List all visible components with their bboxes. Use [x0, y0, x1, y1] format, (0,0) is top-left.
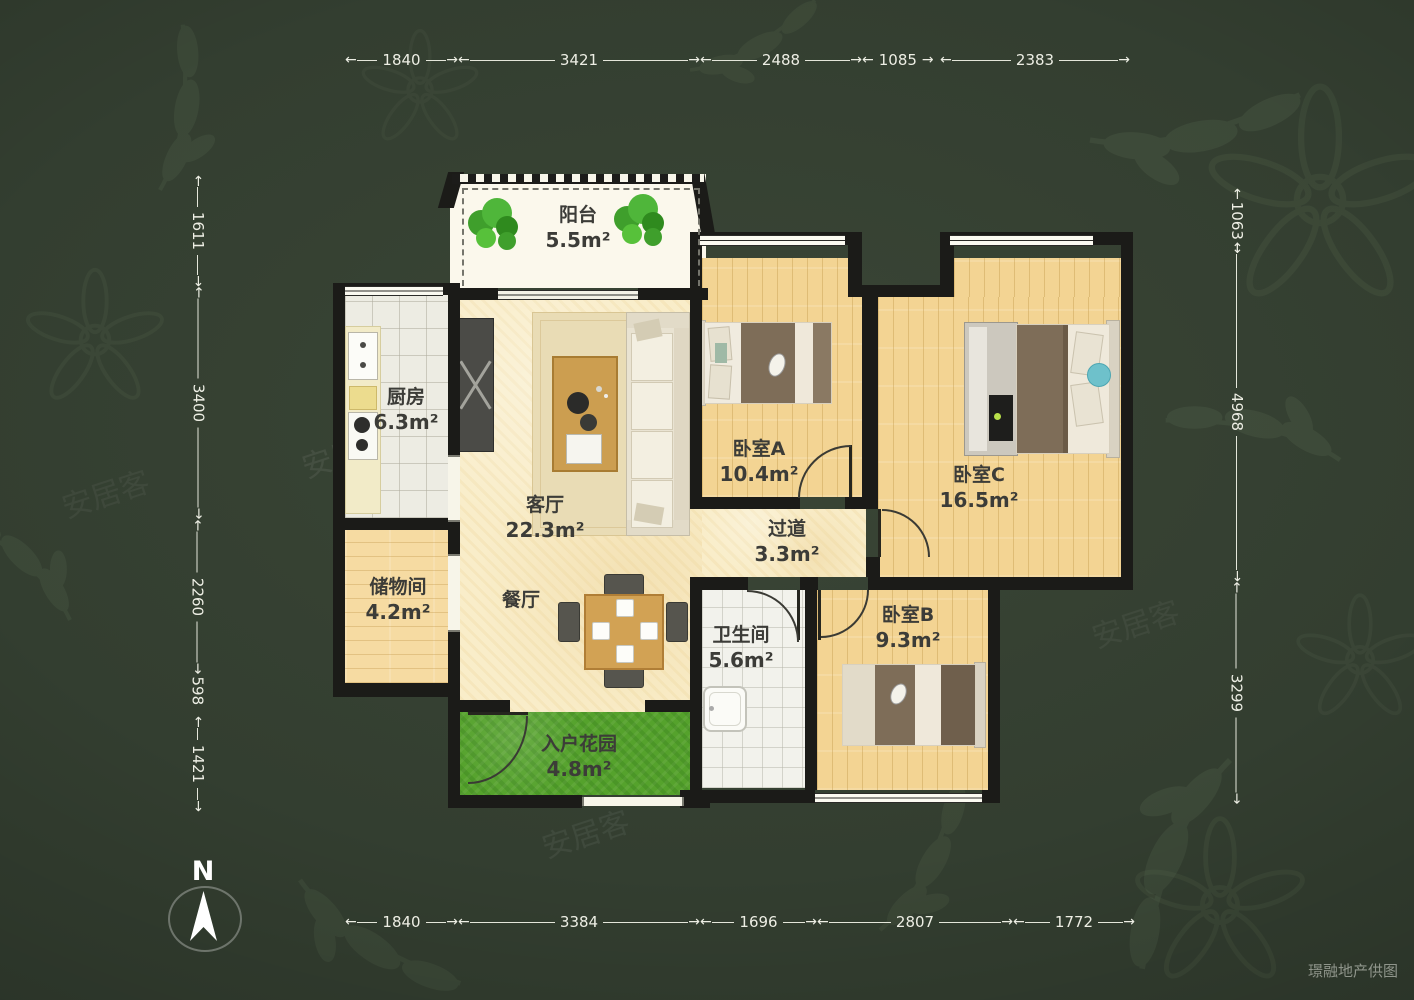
arrow-left-icon: ← — [1230, 242, 1244, 254]
dimension-left-5: ←1421→ — [187, 716, 209, 812]
arrow-left-icon: ← — [458, 915, 470, 929]
dimension-value: 1840 — [377, 913, 425, 931]
dimension-value: 4968 — [1228, 388, 1246, 436]
wardrobe-tv-stand — [964, 322, 1018, 456]
dimension-value: 2383 — [1011, 51, 1059, 69]
arrow-left-icon: ← — [458, 53, 470, 67]
dimension-bottom-3: ←1696→ — [700, 911, 817, 933]
dimension-value: 3421 — [555, 51, 603, 69]
dimension-left-2: ←3400→ — [188, 287, 210, 520]
plate — [616, 645, 634, 663]
dining-chair — [558, 602, 580, 642]
wall-segment — [448, 628, 460, 683]
wall-segment — [448, 518, 460, 554]
room-name: 卧室C — [940, 464, 1019, 488]
room-area: 6.3m² — [373, 410, 438, 435]
window-bedroom-c — [950, 235, 1093, 246]
arrow-left-icon: ← — [817, 915, 829, 929]
kitchen-sink — [348, 332, 378, 380]
blanket-edge — [1063, 325, 1068, 453]
room-label-corridor: 过道 3.3m² — [754, 518, 819, 567]
wall-segment — [448, 795, 582, 808]
dimension-value: 598 — [189, 675, 207, 708]
room-name: 入户花园 — [541, 733, 617, 757]
wall-segment — [988, 577, 1000, 803]
wall-segment — [868, 577, 1133, 590]
dimension-right-2: ←4968→ — [1226, 242, 1248, 582]
room-label-bedroom-b: 卧室B 9.3m² — [875, 604, 940, 653]
drain — [709, 706, 714, 711]
arrow-right-icon: → — [1123, 915, 1135, 929]
tv-cabinet — [458, 318, 494, 452]
dimension-value: 3384 — [555, 913, 603, 931]
arrow-left-icon: ← — [700, 53, 712, 67]
wall-segment — [800, 577, 818, 590]
window-kitchen — [345, 286, 443, 296]
arrow-left-icon: ← — [862, 53, 874, 67]
door-leaf-bedroom-c — [878, 509, 881, 557]
bed-bedroom-b — [842, 664, 976, 746]
dimension-bottom-2: ←3384→ — [458, 911, 700, 933]
door-leaf-entry — [468, 712, 528, 715]
arrow-right-icon: → — [850, 53, 862, 67]
room-area: 4.2m² — [365, 600, 430, 625]
balcony-sliding-door — [498, 290, 638, 300]
dimension-right-3: ←3299→ — [1226, 582, 1248, 805]
wall-segment — [448, 697, 460, 807]
dimension-left-3: ←2260→ — [187, 520, 209, 675]
balcony-parapet — [452, 174, 704, 184]
pillow — [915, 665, 941, 745]
room-area: 9.3m² — [875, 628, 940, 653]
room-name: 卫生间 — [708, 624, 773, 648]
wall-segment — [805, 590, 817, 790]
room-area: 22.3m² — [506, 518, 585, 543]
room-name: 厨房 — [373, 386, 438, 410]
dimension-value: 1421 — [189, 740, 207, 788]
wall-segment — [848, 285, 954, 297]
arrow-right-icon: → — [1230, 570, 1244, 582]
dimension-bottom-4: ←2807→ — [817, 911, 1013, 933]
teapot — [567, 392, 589, 414]
room-label-balcony: 阳台 5.5m² — [545, 204, 610, 253]
room-name: 卧室A — [720, 438, 799, 462]
room-label-kitchen: 厨房 6.3m² — [373, 386, 438, 435]
arrow-right-icon: → — [446, 915, 458, 929]
room-area: 3.3m² — [754, 542, 819, 567]
wall-segment — [638, 288, 708, 300]
arrow-left-icon: ← — [191, 175, 205, 187]
door-opening-kitchen — [448, 455, 460, 522]
dimension-value: 1063 — [1228, 200, 1246, 242]
arrow-right-icon: → — [688, 53, 700, 67]
blanket — [875, 665, 915, 745]
room-name: 卧室B — [875, 604, 940, 628]
wall-segment — [690, 577, 702, 795]
window-bedroom-a — [700, 235, 845, 246]
dimension-value: 1085 — [874, 51, 922, 69]
door-opening-storage — [448, 554, 460, 632]
room-name: 餐厅 — [502, 589, 540, 613]
dimension-bottom-5: ←1772→ — [1013, 911, 1135, 933]
dimension-value: 2807 — [891, 913, 939, 931]
arrow-right-icon: → — [805, 915, 817, 929]
wall-segment — [866, 557, 880, 577]
dimension-value: 1840 — [377, 51, 425, 69]
arrow-right-icon: → — [1001, 915, 1013, 929]
room-area: 4.8m² — [541, 757, 617, 782]
dimension-value: 1772 — [1050, 913, 1098, 931]
room-label-bathroom: 卫生间 5.6m² — [708, 624, 773, 673]
wall-segment — [333, 518, 460, 530]
accent-pillow — [1087, 363, 1111, 387]
dimension-value: 3400 — [190, 379, 208, 427]
room-name: 储物间 — [365, 576, 430, 600]
arrow-right-icon: → — [192, 508, 206, 520]
arrow-left-icon: ← — [700, 915, 712, 929]
blanket — [941, 665, 975, 745]
dimension-left-4: 598 — [187, 675, 209, 716]
arrow-right-icon: → — [1230, 793, 1244, 805]
blanket-fold — [843, 665, 875, 745]
sofa-cushion — [631, 431, 673, 479]
dimension-value: 2260 — [189, 573, 207, 621]
wall-segment — [448, 700, 510, 712]
room-label-bedroom-c: 卧室C 16.5m² — [940, 464, 1019, 513]
dining-chair — [666, 602, 688, 642]
room-area: 5.5m² — [545, 228, 610, 253]
room-label-living: 客厅 22.3m² — [506, 494, 585, 543]
dimension-right-1: ←1063→ — [1226, 188, 1248, 242]
arrow-left-icon: ← — [345, 915, 357, 929]
dimension-value: 1611 — [189, 207, 207, 255]
plate — [592, 622, 610, 640]
arrow-left-icon: ← — [345, 53, 357, 67]
wall-segment — [333, 283, 345, 697]
room-label-dining: 餐厅 — [502, 589, 540, 613]
sofa-cushion — [631, 382, 673, 430]
dot — [604, 394, 608, 398]
dining-chair — [604, 574, 644, 596]
room-label-bedroom-a: 卧室A 10.4m² — [720, 438, 799, 487]
plate — [640, 622, 658, 640]
arrow-left-icon: ← — [1230, 188, 1244, 200]
wall-segment — [448, 288, 498, 300]
arrow-right-icon: → — [446, 53, 458, 67]
entry-door-threshold — [582, 797, 684, 806]
arrow-left-icon: ← — [1013, 915, 1025, 929]
wall-segment — [333, 683, 460, 697]
plate — [616, 599, 634, 617]
wardrobe-door — [969, 327, 987, 451]
floorplan-page: 安居客 安居客 安居客 安居客 安居客 — [0, 0, 1414, 1000]
arrow-right-icon: → — [922, 53, 934, 67]
dimension-top-3: ←2488→ — [700, 49, 862, 71]
dining-table — [584, 594, 664, 670]
wall-segment — [1121, 232, 1133, 590]
dimension-value: 2488 — [757, 51, 805, 69]
tray — [566, 434, 602, 464]
dimension-top-5: ←2383→ — [940, 49, 1130, 71]
dot — [596, 386, 602, 392]
room-area: 10.4m² — [720, 462, 799, 487]
arrow-right-icon: → — [191, 800, 205, 812]
pillow — [1070, 381, 1104, 426]
arrow-left-icon: ← — [940, 53, 952, 67]
wall-segment — [448, 283, 460, 455]
accent-pillow — [715, 343, 727, 363]
dimension-left-1: ←1611→ — [187, 175, 209, 287]
blanket — [813, 323, 831, 403]
pillow — [708, 364, 732, 399]
room-label-storage: 储物间 4.2m² — [365, 576, 430, 625]
sofa — [626, 312, 690, 536]
bed-bedroom-a — [704, 322, 832, 404]
dimension-top-4: ←1085→ — [862, 49, 940, 71]
arrow-right-icon: → — [191, 275, 205, 287]
blanket — [1017, 325, 1063, 453]
dimension-top-2: ←3421→ — [458, 49, 700, 71]
room-name: 阳台 — [545, 204, 610, 228]
room-label-garden: 入户花园 4.8m² — [541, 733, 617, 782]
room-area: 5.6m² — [708, 648, 773, 673]
credit-watermark: 璟融地产供图 — [1308, 960, 1398, 981]
sofa-back — [674, 313, 689, 535]
arrow-left-icon: ← — [1230, 582, 1244, 594]
coffee-table — [552, 356, 618, 472]
wall-segment — [690, 497, 800, 509]
arrow-right-icon: → — [191, 663, 205, 675]
arrow-left-icon: ← — [191, 716, 205, 728]
bathtub — [703, 686, 747, 732]
arrow-right-icon: → — [1118, 53, 1130, 67]
tv-screen — [989, 395, 1013, 441]
dimension-top-1: ←1840→ — [345, 49, 458, 71]
teacup — [580, 414, 597, 431]
window-bedroom-b — [815, 793, 982, 803]
floor-bedroom-c — [954, 258, 1121, 300]
dot — [994, 413, 1001, 420]
room-name: 客厅 — [506, 494, 585, 518]
arrow-right-icon: → — [688, 915, 700, 929]
room-area: 16.5m² — [940, 488, 1019, 513]
room-name: 过道 — [754, 518, 819, 542]
arrow-left-icon: ← — [191, 520, 205, 532]
dimension-bottom-1: ←1840→ — [345, 911, 458, 933]
dimension-value: 3299 — [1228, 669, 1246, 717]
wall-segment — [862, 297, 878, 509]
blanket-fold — [795, 323, 813, 403]
bed-bedroom-c — [1016, 324, 1110, 454]
arrow-left-icon: ← — [192, 287, 206, 299]
dimension-value: 1696 — [734, 913, 782, 931]
compass-north-label: N — [192, 856, 215, 887]
